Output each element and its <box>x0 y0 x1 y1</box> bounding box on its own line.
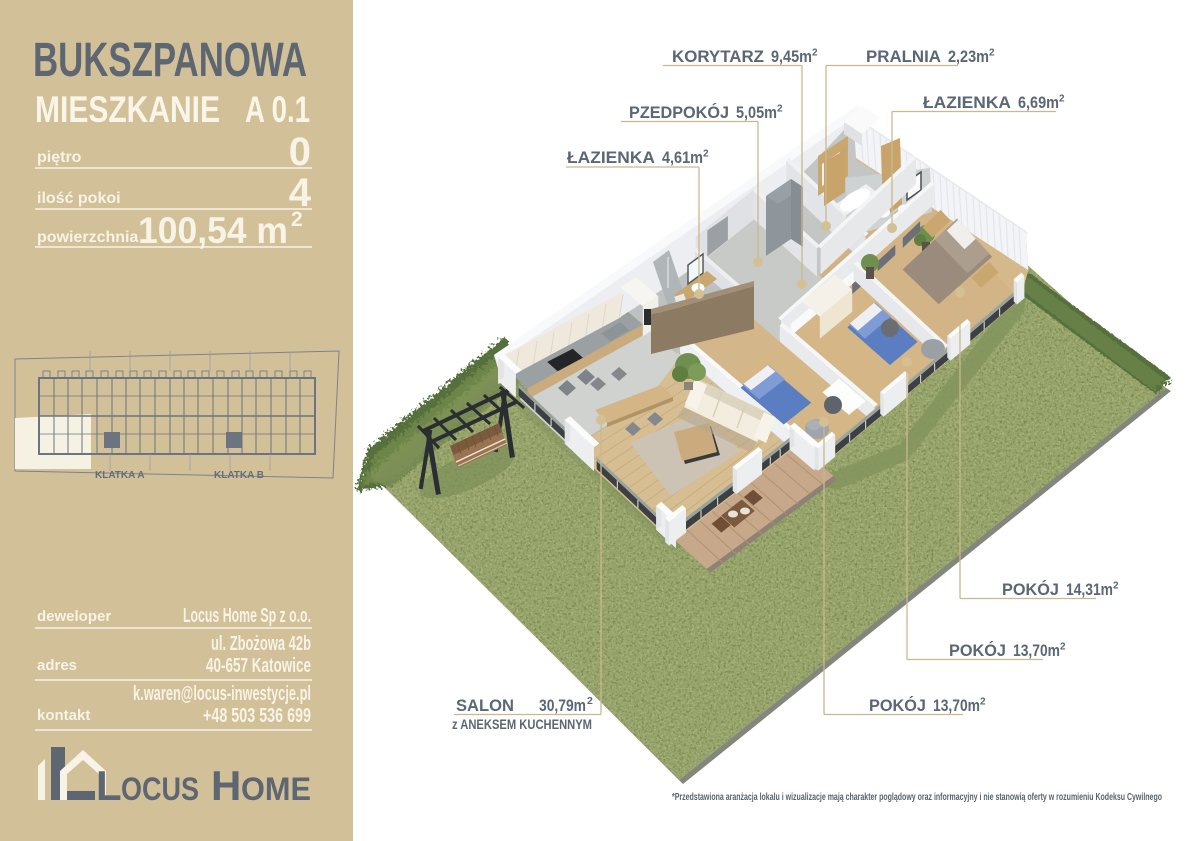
svg-text:ul. Zbożowa 42b: ul. Zbożowa 42b <box>211 633 311 655</box>
svg-text:2: 2 <box>777 104 783 115</box>
svg-text:KLATKA A: KLATKA A <box>95 470 145 481</box>
svg-text:2: 2 <box>989 48 995 59</box>
svg-text:30,79m: 30,79m <box>539 697 586 715</box>
svg-text:13,70m: 13,70m <box>1013 642 1060 660</box>
svg-text:2: 2 <box>1059 94 1065 105</box>
svg-text:A 0.1: A 0.1 <box>245 89 310 130</box>
svg-text:POKÓJ: POKÓJ <box>949 641 1006 660</box>
svg-text:z ANEKSEM KUCHENNYM: z ANEKSEM KUCHENNYM <box>452 716 592 732</box>
svg-text:powierzchnia: powierzchnia <box>37 229 138 246</box>
svg-text:40-657 Katowice: 40-657 Katowice <box>206 655 311 677</box>
svg-text:OME: OME <box>241 771 311 807</box>
svg-text:PRALNIA: PRALNIA <box>866 48 941 66</box>
svg-text:ŁAZIENKA: ŁAZIENKA <box>567 149 655 167</box>
svg-text:2: 2 <box>812 48 818 59</box>
svg-text:2: 2 <box>980 697 986 708</box>
svg-text:2: 2 <box>1113 581 1119 592</box>
svg-text:KLATKA B: KLATKA B <box>214 470 264 481</box>
svg-text:14,31m: 14,31m <box>1066 581 1113 599</box>
svg-text:PZEDPOKÓJ: PZEDPOKÓJ <box>629 103 729 122</box>
svg-text:+48 503 536 699: +48 503 536 699 <box>203 705 311 727</box>
svg-text:H: H <box>211 762 241 809</box>
svg-text:POKÓJ: POKÓJ <box>1002 580 1059 599</box>
svg-text:2: 2 <box>1060 642 1066 653</box>
svg-text:adres: adres <box>37 657 77 674</box>
svg-text:13,70m: 13,70m <box>933 697 980 715</box>
svg-text:2: 2 <box>587 695 593 707</box>
svg-text:4,61m: 4,61m <box>662 149 703 167</box>
svg-text:5,05m: 5,05m <box>736 104 777 122</box>
svg-text:POKÓJ: POKÓJ <box>869 696 926 715</box>
svg-text:Locus Home Sp z o.o.: Locus Home Sp z o.o. <box>183 605 311 627</box>
svg-text:kontakt: kontakt <box>37 707 90 724</box>
svg-text:OCUS: OCUS <box>121 771 199 807</box>
svg-text:9,45m: 9,45m <box>771 48 812 66</box>
svg-text:deweloper: deweloper <box>37 608 111 625</box>
svg-text:BUKSZPANOWA: BUKSZPANOWA <box>33 34 307 87</box>
svg-text:SALON: SALON <box>456 697 514 715</box>
svg-text:100,54 m: 100,54 m <box>138 210 288 251</box>
svg-text:*Przedstawiona aranżacja lokal: *Przedstawiona aranżacja lokalu i wizual… <box>672 792 1162 803</box>
svg-text:2: 2 <box>703 149 709 160</box>
svg-text:piętro: piętro <box>37 149 82 166</box>
svg-text:k.waren@locus-inwestycje.pl: k.waren@locus-inwestycje.pl <box>133 683 311 705</box>
svg-text:2,23m: 2,23m <box>948 48 989 66</box>
svg-text:L: L <box>96 762 122 809</box>
svg-text:2: 2 <box>291 208 303 231</box>
svg-text:MIESZKANIE: MIESZKANIE <box>35 89 220 130</box>
svg-text:KORYTARZ: KORYTARZ <box>672 48 764 66</box>
svg-text:6,69m: 6,69m <box>1018 94 1059 112</box>
svg-text:ŁAZIENKA: ŁAZIENKA <box>923 94 1011 112</box>
svg-text:ilość pokoi: ilość pokoi <box>37 190 121 207</box>
